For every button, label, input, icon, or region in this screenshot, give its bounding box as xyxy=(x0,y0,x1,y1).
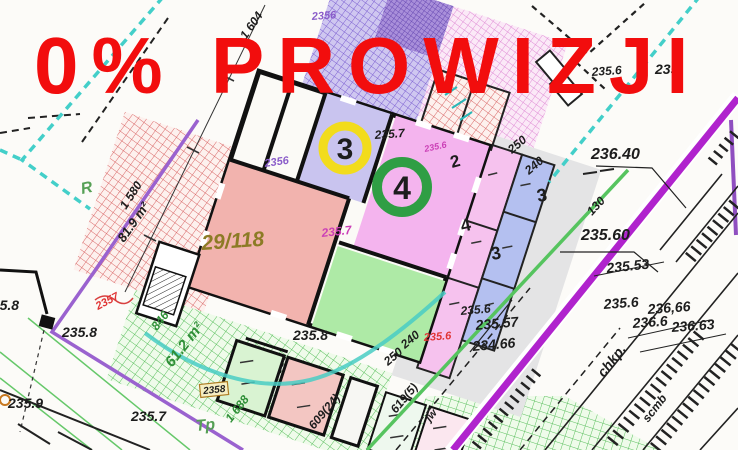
elevation-building-se: 235.8 xyxy=(292,327,328,343)
plot-number: 29/118 xyxy=(200,228,265,255)
elevation-right-235-6: 235.6 xyxy=(602,294,639,312)
unit4-number: 4 xyxy=(393,170,411,206)
elevation-box: 2358 xyxy=(199,382,228,398)
elevation-236-40: 236.40 xyxy=(590,146,640,163)
elevation-unit-navy: 235.7 xyxy=(373,126,406,142)
listing-plan-image: 3 4 2 3 4 3 235.8 235.8 235.9 235.7 235.… xyxy=(0,0,738,450)
elevation-lower-left: 235.9 xyxy=(7,395,43,411)
elevation-236-63: 236.63 xyxy=(670,316,715,335)
elevation-235-60: 235.60 xyxy=(580,227,630,244)
promo-banner: 0% PROWIZJI xyxy=(34,24,738,108)
elevation-left: 235.8 xyxy=(61,324,97,340)
label-tp-mark: Tp xyxy=(195,416,216,435)
elevation-mid-235-6: 235.6 xyxy=(459,301,491,318)
elevation-red-center: 235.6 xyxy=(422,330,452,344)
unit3-number: 3 xyxy=(337,133,354,166)
elevation-clip-left: 235.8 xyxy=(0,297,19,313)
elevation-236-6: 236.6 xyxy=(631,313,668,331)
elevation-bottom: 235.7 xyxy=(130,408,167,424)
